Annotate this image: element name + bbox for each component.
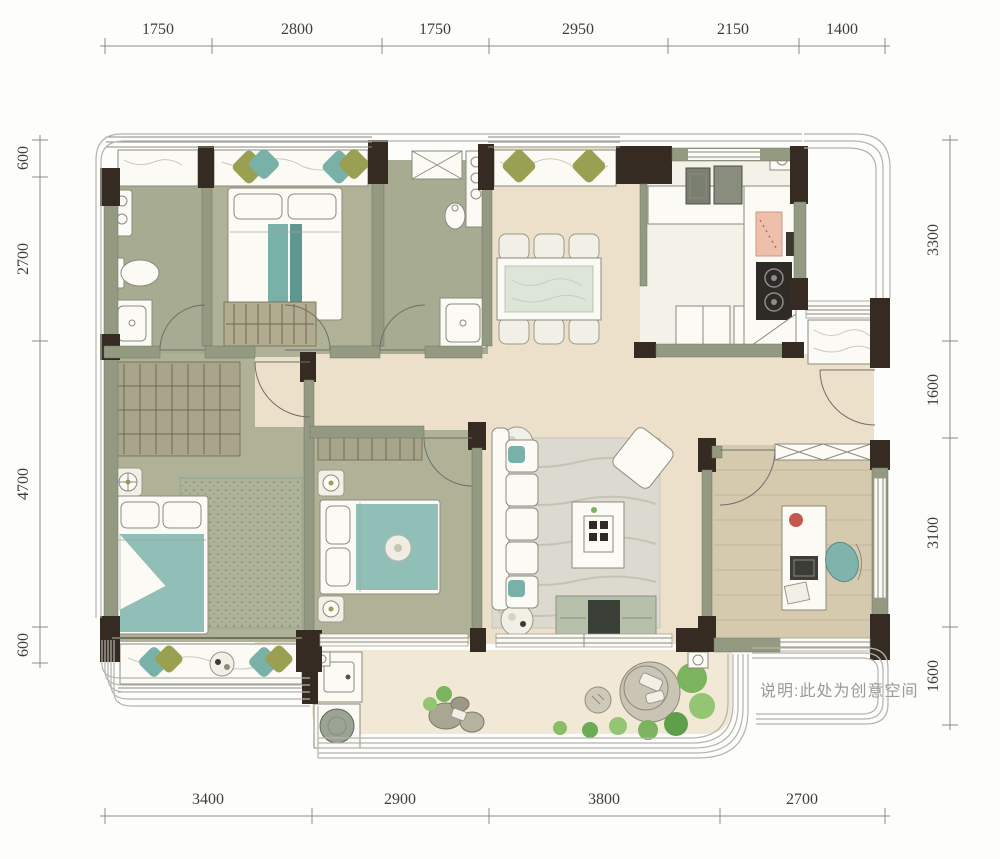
dim-label: 2700 [15,243,32,275]
desk-icon [782,506,826,610]
dim-label: 2700 [786,791,818,808]
shaft-icon [412,151,462,179]
dining-room [494,148,616,344]
floor-corridor [255,357,480,427]
dim-label: 3100 [925,517,942,549]
dimension-top: 1750 2800 1750 2950 2150 1400 [100,21,890,54]
sofa-icon [492,428,538,610]
stone-stool-icon [585,687,611,713]
papers-icon [784,582,809,604]
washing-machine-icon [314,704,360,748]
floor-plan: 1750 2800 1750 2950 2150 1400 3400 2900 … [0,0,1000,859]
bay-window-seat [118,150,198,186]
walkway-outline [804,134,890,298]
drain-icon [688,652,708,668]
dimension-right: 3300 1600 3100 1600 [925,135,958,730]
dim-label: 600 [15,633,32,657]
dimension-left: 600 2700 4700 600 [15,135,48,668]
kitchen-window [688,149,760,160]
tv-cabinet-icon [556,596,656,640]
stove-icon [756,262,792,320]
dim-label: 1400 [826,21,858,38]
mug-icon [789,513,803,527]
dim-label: 4700 [15,468,32,500]
shower-icon [440,298,486,348]
bed-icon [320,500,440,594]
dim-label: 2950 [562,21,594,38]
wardrobe-icon [112,362,240,456]
entry-landing-marble [808,320,874,364]
dim-label: 1750 [419,21,451,38]
fridge-icon [676,306,730,348]
dim-label: 3300 [925,224,942,256]
bed-icon [228,188,342,320]
dim-label: 2150 [717,21,749,38]
living-balcony-door-window [496,634,672,647]
coffee-table-icon [572,502,624,568]
stone-table-icon [620,662,680,722]
creative-space-note: 说明:此处为创意空间 [760,681,918,700]
bedroom2-window [320,634,468,646]
dim-label: 600 [15,146,32,170]
dim-label: 3800 [588,791,620,808]
dim-label: 1600 [925,374,942,406]
tray-table-icon [210,652,234,676]
toilet-icon [445,203,465,229]
dim-label: 1600 [925,660,942,692]
dim-label: 2900 [384,791,416,808]
nightstand-lamp-icon [318,470,344,496]
cutting-board-icon [756,212,782,256]
dining-table-icon [497,258,601,320]
dim-label: 3400 [192,791,224,808]
nightstand-lamp-icon [318,596,344,622]
toilet-icon [112,258,159,288]
shoe-cabinet-x-icon [775,444,871,460]
bay-window-glazing [106,137,620,147]
floor-plan-page: 1750 2800 1750 2950 2150 1400 3400 2900 … [0,0,1000,859]
living-room [492,425,676,640]
dimension-bottom: 3400 2900 3800 2700 [100,791,890,824]
bed-icon [116,496,208,634]
dim-label: 2800 [281,21,313,38]
dim-label: 1750 [142,21,174,38]
